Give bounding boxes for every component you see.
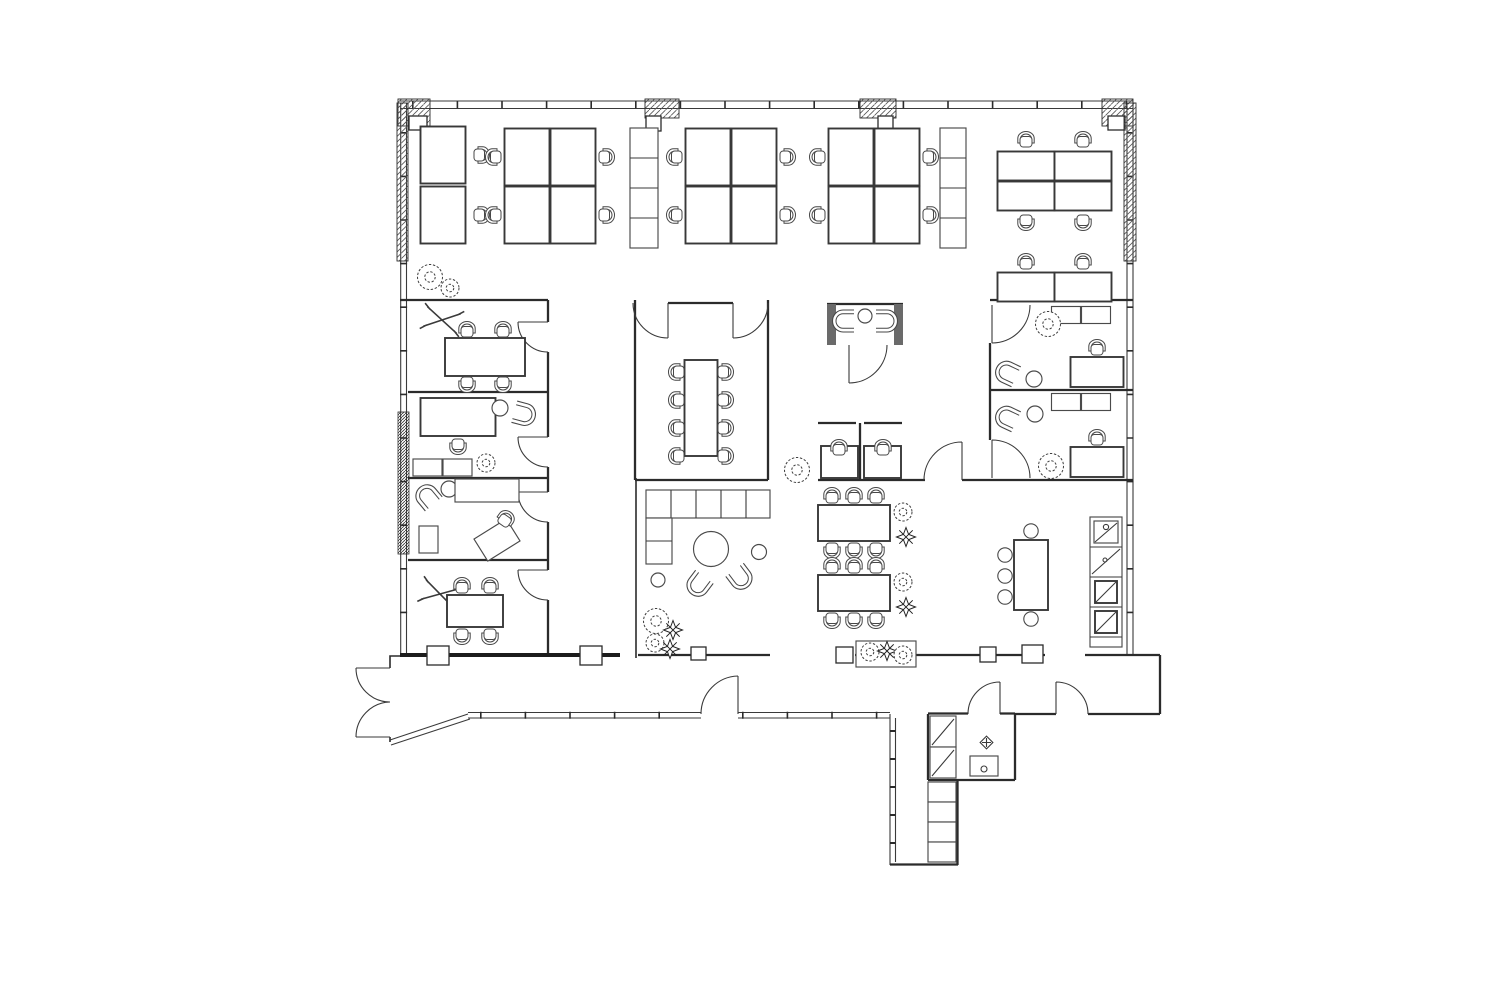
sofa — [646, 490, 770, 518]
task-chair — [923, 149, 939, 165]
door-meeting-left — [633, 303, 668, 338]
chair — [495, 377, 511, 393]
chair — [454, 578, 470, 594]
sideboard — [455, 479, 519, 502]
round-table — [858, 309, 872, 323]
plant — [785, 458, 810, 483]
door-meeting-right — [733, 303, 768, 338]
lounge-chair — [412, 480, 443, 511]
chair — [669, 364, 685, 380]
angled-exterior-wall — [390, 714, 470, 745]
kitchen-counter — [1090, 517, 1122, 647]
chair — [846, 613, 862, 629]
west-wall-hatch — [397, 103, 408, 261]
north-column-hatch-2 — [860, 99, 896, 118]
cafe-table-group-2 — [818, 558, 916, 629]
lounge-chair — [876, 310, 898, 332]
planter-box — [856, 641, 916, 667]
stool — [1024, 612, 1038, 626]
column — [980, 647, 996, 662]
focus-booth — [827, 304, 903, 345]
conference-table — [685, 360, 718, 456]
chair — [846, 488, 862, 504]
task-chair — [1018, 254, 1034, 270]
desk-cluster-b — [486, 129, 615, 244]
floor-plan-page — [0, 0, 1500, 1000]
plant — [894, 503, 912, 521]
task-chair — [780, 207, 796, 223]
side-table — [752, 545, 767, 560]
plant — [661, 640, 680, 659]
column — [691, 647, 706, 660]
column — [1022, 645, 1043, 663]
door-west-room-4 — [518, 570, 548, 600]
cabinet — [1052, 394, 1081, 411]
meeting-room-1 — [420, 303, 525, 392]
desk — [686, 187, 731, 244]
cabinet — [419, 526, 438, 553]
storage-column-1 — [630, 128, 658, 248]
desk — [1055, 182, 1112, 211]
plant — [861, 643, 879, 661]
task-chair — [667, 149, 683, 165]
east-offices — [992, 307, 1123, 479]
north-window-wall — [400, 101, 1133, 109]
lounge-chair — [683, 570, 714, 600]
west-rooms — [412, 303, 538, 644]
door-west-room-2 — [518, 437, 548, 467]
desk — [732, 187, 777, 244]
chair — [868, 488, 884, 504]
chair — [459, 377, 475, 393]
task-chair — [1018, 132, 1034, 148]
lounge-chair — [992, 358, 1021, 387]
high-table-group — [998, 524, 1048, 626]
kitchen-area — [998, 517, 1122, 647]
lounge-chair — [992, 403, 1021, 432]
west-wall-dense-hatch — [398, 412, 409, 554]
side-table — [1026, 371, 1042, 387]
floor-plan — [0, 0, 1500, 1000]
cafe-table — [818, 505, 890, 541]
meeting-table — [447, 595, 503, 627]
desk-cluster-d — [810, 129, 939, 244]
chair — [718, 364, 734, 380]
south-entrance — [356, 655, 1160, 865]
lounge-room-west — [412, 479, 520, 561]
desk — [829, 187, 874, 244]
chair — [868, 613, 884, 629]
chair — [669, 420, 685, 436]
desk — [421, 127, 466, 184]
chair — [482, 578, 498, 594]
lounge-area — [644, 490, 771, 660]
task-chair — [667, 207, 683, 223]
cabinet — [443, 459, 472, 476]
east-office-1 — [992, 307, 1123, 388]
desk — [505, 129, 550, 186]
chair — [831, 440, 847, 456]
southeast-entry-walls — [1015, 655, 1160, 714]
desk — [998, 273, 1055, 302]
door-east-office-2 — [992, 440, 1030, 478]
meeting-table — [445, 338, 525, 376]
chair — [495, 322, 511, 338]
plant — [878, 642, 897, 661]
locker — [928, 822, 956, 842]
south-corridor-wall — [468, 713, 890, 719]
desk — [829, 129, 874, 186]
plant — [418, 265, 443, 290]
task-chair — [810, 149, 826, 165]
door-corridor — [701, 676, 738, 714]
chair — [459, 322, 475, 338]
door-cafe-corridor — [924, 442, 962, 480]
meeting-room-2 — [417, 576, 503, 644]
east-wall-hatch — [1124, 103, 1136, 261]
stool — [998, 569, 1012, 583]
side-table — [492, 400, 508, 416]
cleaning-room — [928, 714, 1015, 863]
task-chair — [599, 149, 615, 165]
chair — [454, 629, 470, 645]
cabinet — [1082, 307, 1111, 324]
desk — [551, 129, 596, 186]
cafe-table — [818, 575, 890, 611]
chair — [824, 488, 840, 504]
desk — [875, 187, 920, 244]
door-southeast-2 — [1056, 682, 1088, 714]
task-chair — [923, 207, 939, 223]
chair — [718, 448, 734, 464]
desk — [505, 187, 550, 244]
desk — [1071, 447, 1124, 477]
desk — [875, 129, 920, 186]
chair — [669, 392, 685, 408]
door-west-room-3 — [518, 492, 548, 522]
column — [836, 647, 853, 663]
lounge-chair — [726, 563, 757, 593]
stool — [998, 548, 1012, 562]
vestibule-wall — [390, 656, 400, 742]
chair — [718, 392, 734, 408]
chair — [824, 558, 840, 574]
task-chair — [486, 149, 502, 165]
task-chair — [1018, 215, 1034, 231]
open-office-north — [421, 127, 1112, 302]
plant — [664, 621, 683, 640]
chair — [824, 613, 840, 629]
door-southeast-1 — [968, 682, 1000, 714]
cafe-area — [818, 488, 916, 668]
task-chair — [1075, 132, 1091, 148]
plant — [894, 646, 912, 664]
task-chair — [1089, 340, 1105, 356]
chair — [669, 448, 685, 464]
doors — [518, 303, 1030, 600]
column — [580, 646, 602, 665]
lounge-chair — [511, 401, 537, 428]
desk — [1071, 357, 1124, 387]
chair — [868, 543, 884, 559]
coat-rack — [420, 303, 465, 337]
cafe-table-group-1 — [818, 488, 916, 559]
lounge-chair — [833, 310, 855, 332]
task-chair — [1075, 215, 1091, 231]
chair — [846, 543, 862, 559]
task-chair — [1075, 254, 1091, 270]
chair — [718, 420, 734, 436]
task-chair — [599, 207, 615, 223]
desk-cluster-a — [421, 127, 490, 244]
side-table — [1027, 406, 1043, 422]
north-column-hatch-1 — [645, 99, 679, 118]
plant — [897, 528, 916, 547]
column — [427, 646, 449, 665]
cabinet — [413, 459, 442, 476]
stool — [1024, 524, 1038, 538]
task-chair — [486, 207, 502, 223]
desk — [686, 129, 731, 186]
double-entry-door — [356, 668, 390, 737]
door-east-office-1 — [992, 305, 1030, 343]
locker — [928, 802, 956, 822]
desk-cluster-c — [667, 129, 796, 244]
task-chair — [780, 149, 796, 165]
side-table — [651, 573, 665, 587]
locker — [928, 782, 956, 802]
desk — [421, 398, 496, 436]
stool — [998, 590, 1012, 604]
door-booth — [849, 345, 887, 383]
task-chair — [1089, 430, 1105, 446]
plants-northwest — [418, 265, 460, 298]
desk — [551, 187, 596, 244]
locker — [928, 842, 956, 862]
small-desk — [474, 519, 520, 561]
desk — [998, 182, 1055, 211]
plant — [477, 454, 495, 472]
phone-booths — [785, 423, 903, 483]
desk — [998, 152, 1055, 181]
plant — [897, 598, 916, 617]
desk-cluster-e — [998, 132, 1112, 231]
chair — [846, 558, 862, 574]
desk — [1055, 273, 1112, 302]
chair — [868, 558, 884, 574]
storage-column-2 — [940, 128, 966, 248]
east-office-2 — [992, 394, 1123, 479]
cabinet — [1082, 394, 1111, 411]
chair — [824, 543, 840, 559]
plant — [1039, 454, 1064, 479]
desk — [1055, 152, 1112, 181]
task-chair — [810, 207, 826, 223]
desk — [421, 187, 466, 244]
chair — [875, 440, 891, 456]
high-table — [1014, 540, 1048, 610]
desk — [732, 129, 777, 186]
chair — [482, 629, 498, 645]
task-chair — [450, 439, 466, 455]
column — [1108, 116, 1125, 130]
desk-pair-f — [998, 254, 1112, 302]
conference-room — [669, 360, 734, 464]
coffee-table — [694, 532, 729, 567]
plant — [894, 573, 912, 591]
plant — [1036, 312, 1061, 337]
plant — [441, 279, 459, 297]
